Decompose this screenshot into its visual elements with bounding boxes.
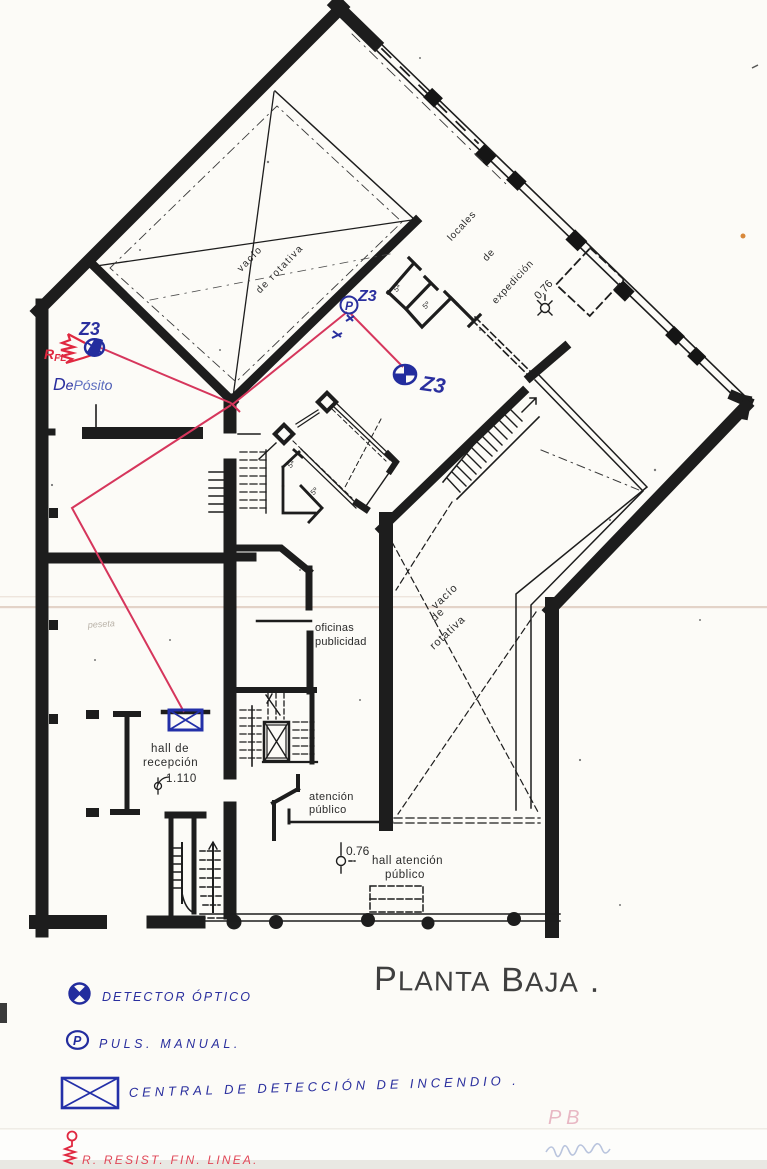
svg-text:P: P <box>345 299 354 313</box>
svg-text:peseta: peseta <box>86 618 115 630</box>
svg-text:DETECTOR ÓPTICO: DETECTOR ÓPTICO <box>102 989 252 1004</box>
svg-text:P: P <box>73 1034 82 1048</box>
svg-text:hall de: hall de <box>151 743 189 755</box>
svg-text:Z3: Z3 <box>78 319 100 339</box>
svg-text:DePósito: DePósito <box>53 374 113 394</box>
svg-text:hall atención: hall atención <box>372 855 443 867</box>
svg-text:público: público <box>385 869 425 881</box>
svg-text:Z3: Z3 <box>357 288 377 305</box>
svg-text:PLANTA BAJA .: PLANTA BAJA . <box>374 960 601 1000</box>
svg-text:atención: atención <box>309 791 354 803</box>
svg-text:R. RESIST. FIN. LINEA.: R. RESIST. FIN. LINEA. <box>82 1153 259 1167</box>
svg-text:1.110: 1.110 <box>166 773 197 785</box>
svg-text:oficinas: oficinas <box>315 622 354 634</box>
svg-text:PULS. MANUAL.: PULS. MANUAL. <box>99 1037 241 1051</box>
svg-text:publicidad: publicidad <box>315 636 367 648</box>
svg-text:Z3: Z3 <box>418 372 447 398</box>
svg-text:0.76: 0.76 <box>346 844 370 858</box>
svg-text:recepción: recepción <box>143 757 198 769</box>
svg-text:P B: P B <box>548 1107 580 1129</box>
svg-text:público: público <box>309 804 347 816</box>
